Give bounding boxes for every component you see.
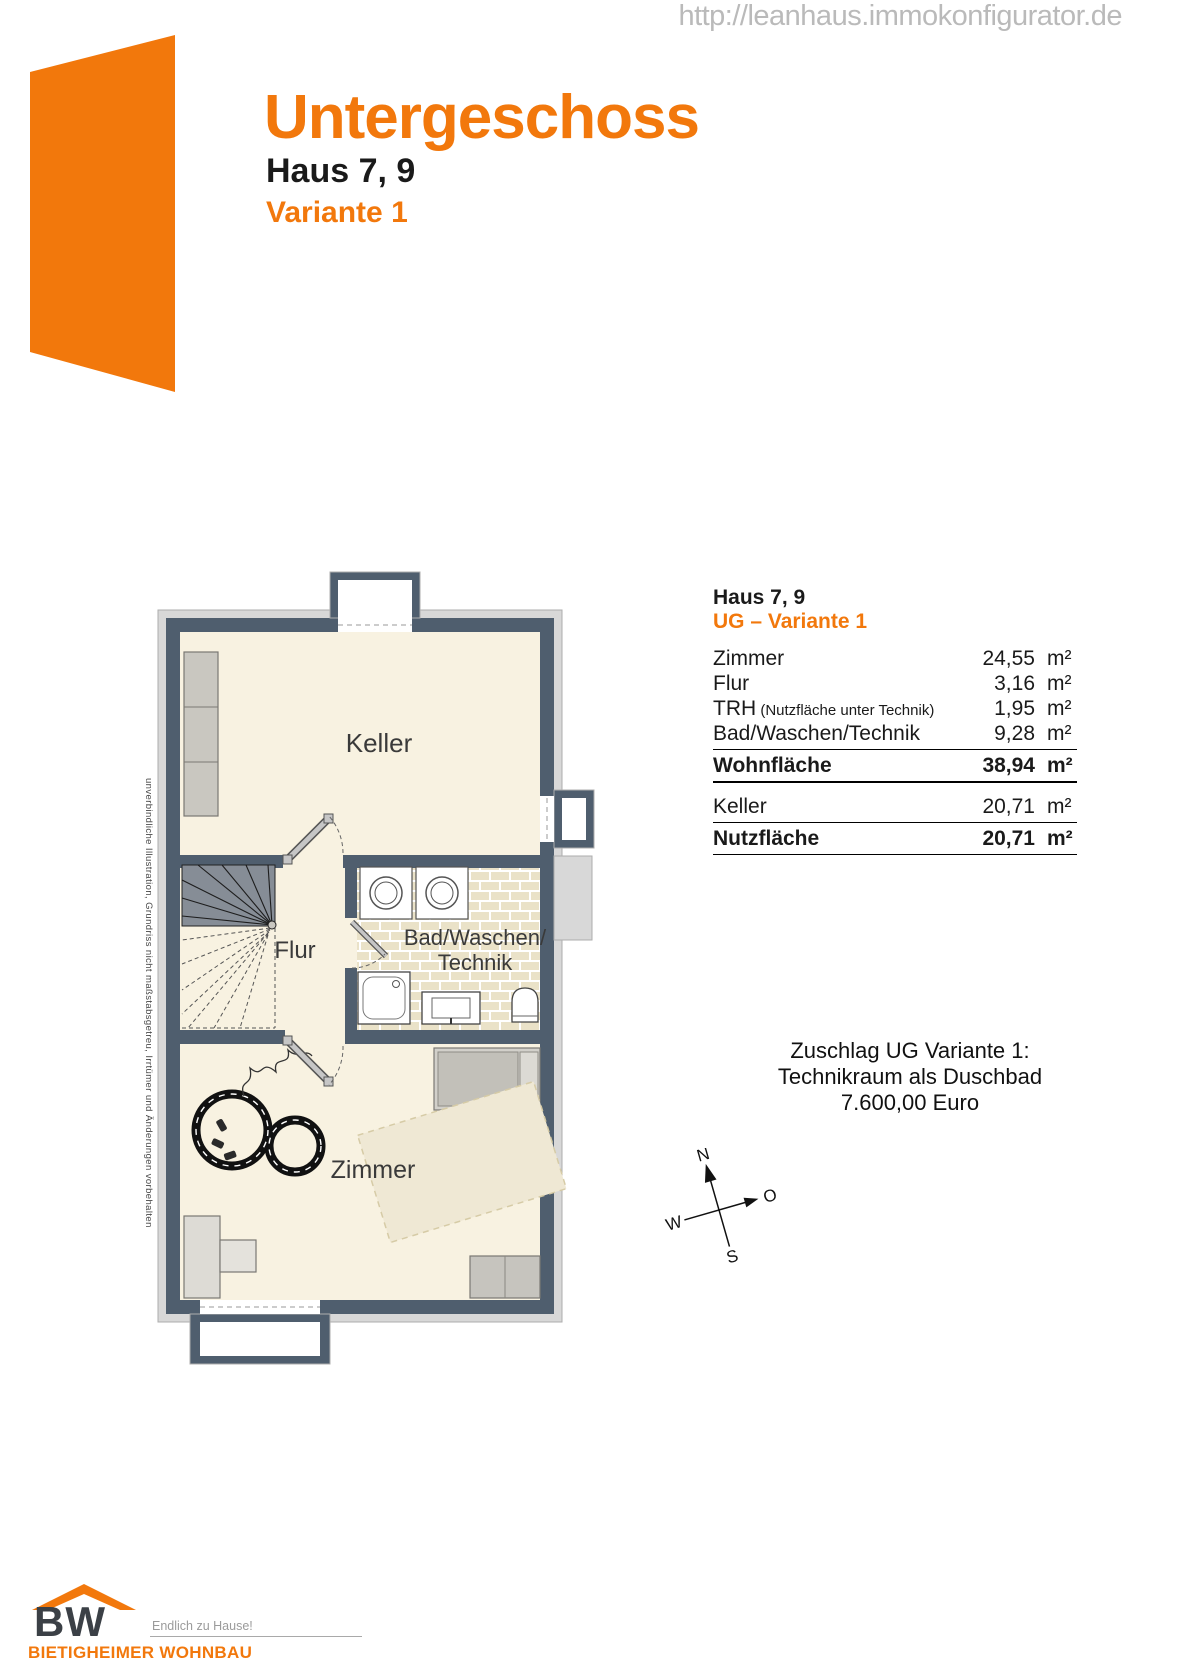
window-right: [540, 790, 594, 848]
company-name: BIETIGHEIMER WOHNBAU: [28, 1643, 252, 1663]
keller-room-label: Keller: [346, 728, 413, 758]
table-divider: [713, 822, 1077, 823]
compass-rose-icon: N S W O: [652, 1148, 792, 1272]
table-divider: [713, 854, 1077, 855]
compass-west-label: W: [664, 1212, 685, 1235]
surcharge-line3: 7.600,00 Euro: [710, 1090, 1110, 1116]
bad-room-label-line2: Technik: [438, 950, 514, 975]
table-total-nutzflaeche: Nutzfläche 20,71 m²: [713, 826, 1077, 851]
area-table: Haus 7, 9 UG – Variante 1 Zimmer 24,55 m…: [713, 586, 1077, 858]
shelf: [184, 652, 218, 816]
window-top: [330, 572, 420, 632]
flur-room-label: Flur: [274, 937, 315, 964]
shower-icon: [358, 972, 410, 1024]
orange-banner: [0, 30, 200, 400]
floor-plan: Keller Flur Bad/Waschen/ Technik Zimmer: [140, 540, 600, 1380]
table-divider: [713, 749, 1077, 750]
table-row: TRH (Nutzfläche unter Technik) 1,95 m²: [713, 696, 1077, 721]
table-divider-thick: [713, 781, 1077, 783]
footer-slogan: Endlich zu Hause!: [152, 1619, 253, 1633]
surcharge-line1: Zuschlag UG Variante 1:: [710, 1038, 1110, 1064]
table-row: Zimmer 24,55 m²: [713, 646, 1077, 671]
table-title: Haus 7, 9: [713, 586, 1077, 610]
window-bottom: [190, 1300, 330, 1364]
page: http://leanhaus.immokonfigurator.de Unte…: [0, 0, 1200, 1672]
zimmer-room-label: Zimmer: [331, 1156, 416, 1184]
table-row-keller: Keller 20,71 m²: [713, 794, 1077, 819]
surcharge-note: Zuschlag UG Variante 1: Technikraum als …: [710, 1038, 1110, 1116]
table-total-wohnflaeche: Wohnfläche 38,94 m²: [713, 753, 1077, 778]
page-title: Untergeschoss: [264, 82, 699, 153]
surcharge-line2: Technikraum als Duschbad: [710, 1064, 1110, 1090]
url-watermark: http://leanhaus.immokonfigurator.de: [678, 0, 1122, 33]
page-variant: Variante 1: [266, 196, 408, 230]
logo-text: BW: [34, 1598, 106, 1646]
dresser-icon: [470, 1256, 540, 1298]
compass-east-label: O: [761, 1185, 779, 1207]
lightwell: [554, 856, 592, 940]
toilet-icon: [512, 988, 538, 1022]
compass-north-label: N: [695, 1148, 712, 1166]
compass-south-label: S: [724, 1246, 740, 1267]
table-row: Flur 3,16 m²: [713, 671, 1077, 696]
bad-room-label-line1: Bad/Waschen/: [404, 925, 547, 950]
page-subtitle: Haus 7, 9: [266, 152, 415, 191]
table-subtitle: UG – Variante 1: [713, 610, 1077, 634]
table-row: Bad/Waschen/Technik 9,28 m²: [713, 721, 1077, 746]
washbasin-icon: [422, 992, 480, 1024]
footer-divider: [150, 1636, 362, 1637]
